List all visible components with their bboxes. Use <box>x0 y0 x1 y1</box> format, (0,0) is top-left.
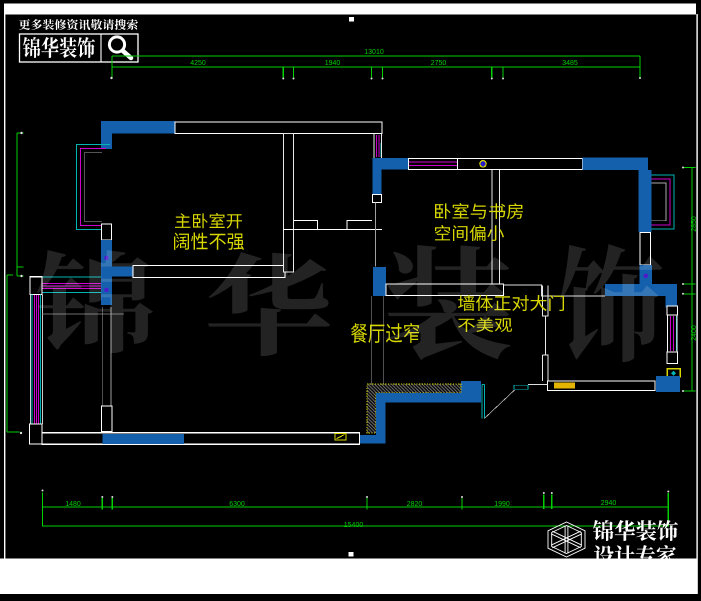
svg-text:2750: 2750 <box>431 60 447 67</box>
svg-text:4250: 4250 <box>190 60 206 67</box>
svg-text:3485: 3485 <box>562 60 578 67</box>
svg-text:2940: 2940 <box>601 500 617 507</box>
svg-text:1940: 1940 <box>325 60 341 67</box>
svg-text:13010: 13010 <box>364 49 384 56</box>
svg-text:15400: 15400 <box>344 522 364 529</box>
svg-text:1480: 1480 <box>65 501 81 508</box>
svg-text:1990: 1990 <box>494 501 510 508</box>
svg-text:6300: 6300 <box>229 501 245 508</box>
svg-text:2820: 2820 <box>407 501 423 508</box>
